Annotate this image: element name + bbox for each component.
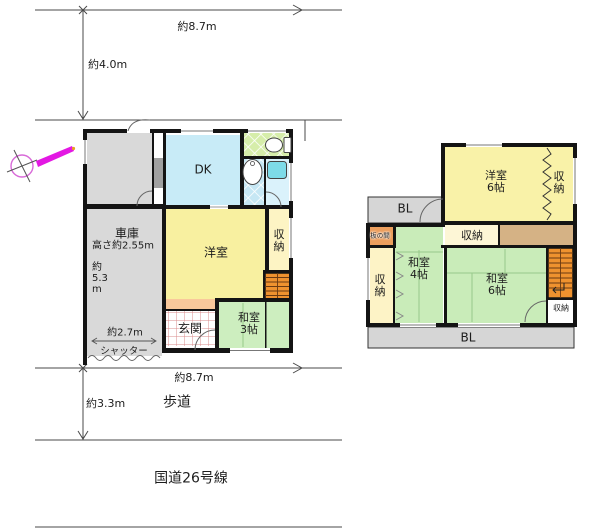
room-label-storage-left: 収 納 (375, 274, 386, 298)
floor1-stairs (265, 273, 290, 300)
bathtub-icon (243, 160, 262, 185)
room-label-japanese3: 和室 3帖 (238, 312, 260, 336)
dim-road-depth: 約3.3m (86, 398, 125, 410)
room-label-dk: DK (194, 164, 211, 177)
room-label-entrance: 玄関 (178, 323, 202, 336)
garage-height-note: 高さ約2.55m (92, 242, 154, 253)
room-label-storage-br: 収納 (553, 305, 569, 314)
room-label-storage-right: 収 納 (554, 171, 565, 195)
garage-depth-dim: 約 5.3 m (92, 262, 108, 295)
room-label-garage: 車庫 (115, 228, 139, 241)
room-label-western1: 洋室 (204, 247, 228, 260)
room-label-western6: 洋室 6帖 (485, 170, 507, 194)
dim-left-height: 約4.0m (88, 59, 127, 71)
balcony-top-label: BL (398, 203, 413, 216)
room-label-japanese6: 和室 6帖 (486, 273, 508, 297)
floor2-stairs (548, 248, 573, 298)
sink-icon (268, 162, 287, 179)
room-label-japanese4: 和室 4帖 (408, 257, 430, 281)
shutter-label: シャッター (100, 347, 148, 357)
room-label-itanoma: 板の間 (370, 232, 390, 239)
toilet-icon (266, 138, 292, 153)
garage-width-dim: 約2.7m (107, 329, 143, 340)
floor2-plan (366, 143, 577, 348)
dim-bottom-width: 約8.7m (174, 372, 213, 384)
sidewalk-label: 歩道 (163, 395, 191, 410)
room-label-storage1: 収 納 (274, 229, 285, 253)
floor2-corridor (500, 225, 573, 247)
floorplan-page: 約8.7m 約4.0m DK 車庫 高さ約2.55m 約 5.3 m 約2.7m… (0, 0, 600, 529)
road-label: 国道26号線 (154, 471, 228, 486)
floorplan-graphics (0, 0, 600, 529)
compass-icon (7, 146, 75, 182)
dim-top-width: 約8.7m (177, 21, 216, 33)
balcony-bottom-label: BL (461, 332, 476, 345)
room-label-storage-mid: 収納 (461, 230, 483, 242)
floor1-hall (86, 131, 152, 208)
